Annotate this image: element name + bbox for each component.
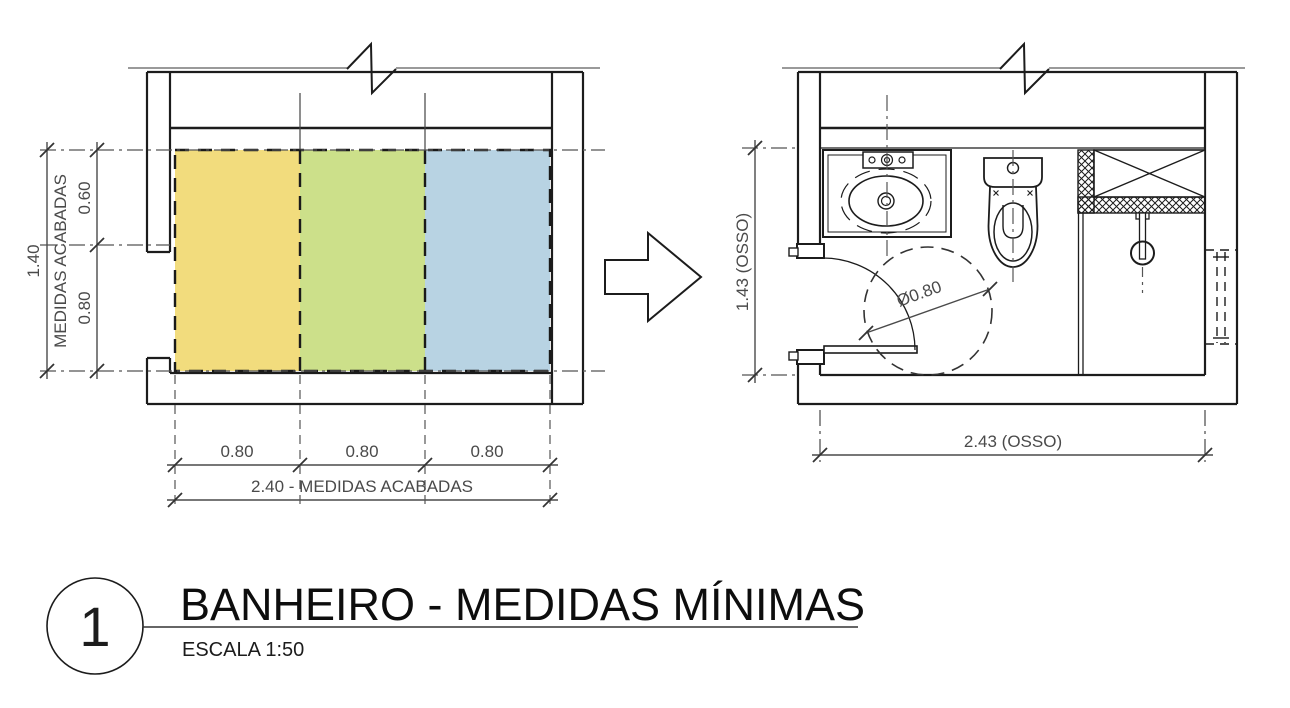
transition-arrow-icon <box>605 233 701 321</box>
break-symbol-icon <box>347 44 396 93</box>
window-dashed <box>1205 250 1237 344</box>
dim-width-osso: 2.43 (OSSO) <box>964 432 1062 451</box>
drawing-number: 1 <box>79 595 110 658</box>
door-jamb-top <box>797 244 824 258</box>
zone-rect-blue <box>425 150 550 371</box>
drawing-sheet: 1.40 MEDIDAS ACABADAS 0.60 0.80 0.80 0.8… <box>0 0 1290 708</box>
zone-rect-green <box>300 150 425 371</box>
drawing-title: BANHEIRO - MEDIDAS MÍNIMAS <box>180 579 865 630</box>
toilet <box>984 150 1042 287</box>
door-leaf <box>824 346 917 353</box>
break-symbol-icon <box>1000 44 1049 93</box>
turning-circle-label: Ø0.80 <box>894 277 944 311</box>
title-block: 1 BANHEIRO - MEDIDAS MÍNIMAS ESCALA 1:50 <box>47 578 865 674</box>
shower-wall-hatch <box>1078 197 1205 213</box>
door-jamb-bottom <box>797 350 824 364</box>
dim-width-seg-3: 0.80 <box>470 442 503 461</box>
dim-height-axis-label: MEDIDAS ACABADAS <box>51 174 70 348</box>
door-jamb-top-cap <box>789 248 798 256</box>
zone-rect-yellow <box>175 150 300 371</box>
finished-measures-plan: 1.40 MEDIDAS ACABADAS 0.60 0.80 0.80 0.8… <box>24 44 605 508</box>
dim-height-total: 1.40 <box>24 244 43 277</box>
dim-width-total: 2.40 - MEDIDAS ACABADAS <box>251 477 473 496</box>
dim-height-top: 0.60 <box>75 181 94 214</box>
dim-width-seg-1: 0.80 <box>220 442 253 461</box>
dim-height-osso: 1.43 (OSSO) <box>733 213 752 311</box>
architectural-drawing: 1.40 MEDIDAS ACABADAS 0.60 0.80 0.80 0.8… <box>0 0 1290 708</box>
dim-width-seg-2: 0.80 <box>345 442 378 461</box>
washbasin-counter <box>823 95 951 260</box>
turning-circle: Ø0.80 <box>859 247 997 375</box>
toilet-bowl <box>989 187 1038 267</box>
bathroom-floor-plan: Ø0.80 1.43 (OSSO) 2.43 (OSSO) <box>733 44 1245 462</box>
shower-box <box>1078 150 1205 375</box>
drawing-scale: ESCALA 1:50 <box>182 639 304 661</box>
dim-height-bottom: 0.80 <box>75 291 94 324</box>
door-jamb-bottom-cap <box>789 352 798 360</box>
shower-arm <box>1140 213 1146 259</box>
